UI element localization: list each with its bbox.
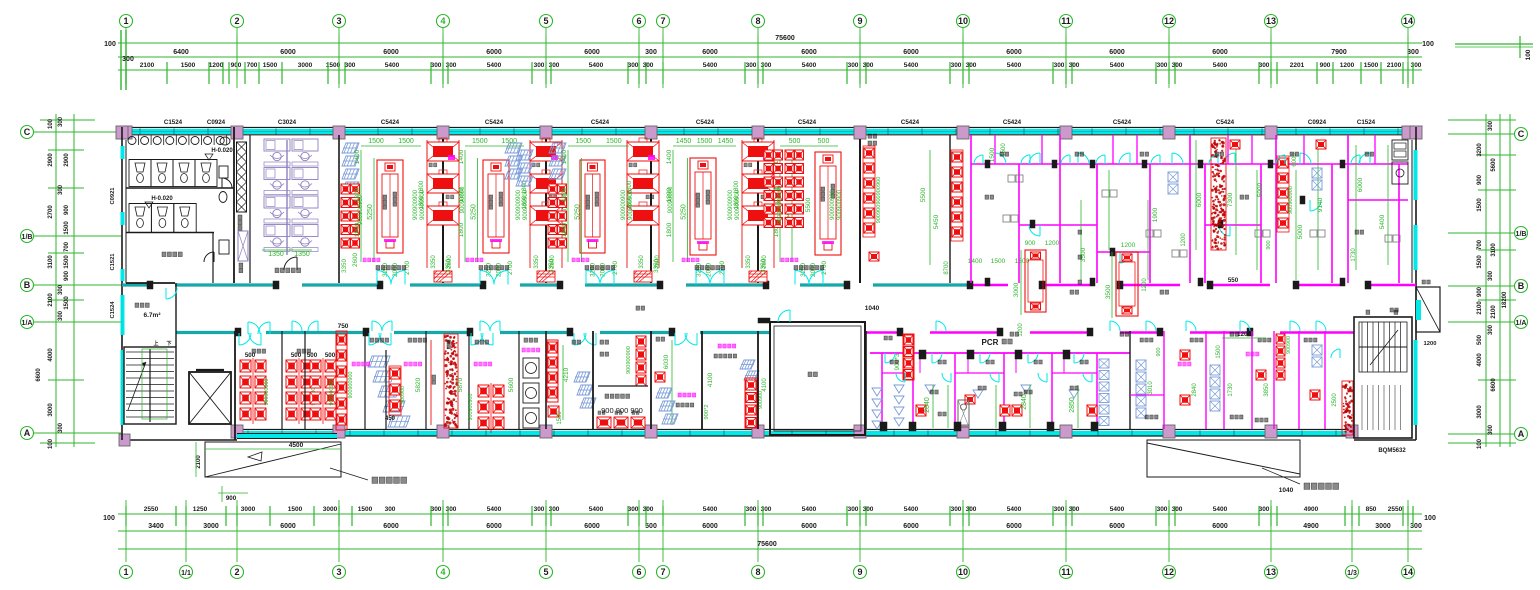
svg-text:H-0.020: H-0.020 bbox=[151, 196, 173, 202]
svg-text:1800: 1800 bbox=[458, 187, 465, 202]
svg-text:700: 700 bbox=[1477, 239, 1483, 250]
svg-text:300: 300 bbox=[1054, 62, 1065, 69]
svg-text:1/B: 1/B bbox=[1516, 231, 1527, 238]
svg-text:1500: 1500 bbox=[501, 138, 517, 145]
svg-text:C1521: C1521 bbox=[110, 253, 116, 271]
svg-text:1350: 1350 bbox=[268, 251, 284, 258]
svg-text:100: 100 bbox=[48, 438, 54, 449]
svg-text:500: 500 bbox=[325, 352, 336, 359]
svg-text:7300: 7300 bbox=[1227, 192, 1234, 207]
svg-text:900900900: 900900900 bbox=[621, 189, 627, 220]
svg-text:6000: 6000 bbox=[1196, 192, 1203, 207]
svg-text:3350: 3350 bbox=[431, 255, 437, 269]
svg-text:1500: 1500 bbox=[181, 62, 196, 69]
svg-text:900: 900 bbox=[1320, 62, 1331, 69]
svg-text:C0924: C0924 bbox=[207, 119, 226, 126]
svg-text:900: 900 bbox=[1477, 286, 1483, 297]
svg-text:3000: 3000 bbox=[203, 523, 219, 530]
svg-text:3000: 3000 bbox=[298, 62, 313, 69]
svg-text:1500: 1500 bbox=[575, 138, 591, 145]
svg-text:2700: 2700 bbox=[48, 205, 54, 219]
svg-text:6000: 6000 bbox=[702, 49, 718, 56]
svg-text:5250: 5250 bbox=[681, 204, 688, 220]
svg-text:300: 300 bbox=[1172, 506, 1183, 513]
svg-text:PCR: PCR bbox=[982, 338, 999, 347]
svg-text:900: 900 bbox=[1156, 348, 1162, 357]
svg-text:5400: 5400 bbox=[1213, 62, 1228, 69]
svg-text:4000: 4000 bbox=[1477, 353, 1483, 367]
svg-text:3400: 3400 bbox=[148, 523, 164, 530]
svg-text:900: 900 bbox=[226, 495, 237, 502]
svg-text:300: 300 bbox=[1488, 120, 1494, 131]
svg-text:4900: 4900 bbox=[1304, 506, 1319, 513]
svg-text:1400: 1400 bbox=[561, 149, 568, 164]
svg-text:3000: 3000 bbox=[323, 506, 338, 513]
svg-text:700: 700 bbox=[247, 62, 258, 69]
svg-text:14: 14 bbox=[1403, 567, 1413, 577]
svg-text:5450: 5450 bbox=[933, 214, 940, 229]
svg-text:1: 1 bbox=[123, 16, 128, 26]
svg-text:9: 9 bbox=[857, 567, 862, 577]
svg-text:C5424: C5424 bbox=[798, 119, 817, 126]
svg-text:1/A: 1/A bbox=[22, 320, 33, 327]
svg-text:900: 900 bbox=[64, 204, 70, 215]
svg-text:300: 300 bbox=[628, 506, 639, 513]
svg-text:900900900: 900900900 bbox=[837, 189, 843, 220]
svg-text:1800: 1800 bbox=[666, 222, 673, 237]
svg-text:6030: 6030 bbox=[663, 354, 670, 369]
svg-text:2550: 2550 bbox=[144, 506, 159, 513]
svg-text:300: 300 bbox=[1488, 424, 1494, 435]
svg-text:11: 11 bbox=[1061, 16, 1071, 26]
svg-text:900900900: 900900900 bbox=[468, 394, 474, 421]
svg-text:4900: 4900 bbox=[1303, 523, 1319, 530]
svg-text:1800: 1800 bbox=[561, 187, 568, 202]
svg-text:900900900900900: 900900900900900 bbox=[876, 177, 882, 224]
svg-text:5400: 5400 bbox=[487, 62, 502, 69]
svg-text:6000: 6000 bbox=[584, 523, 600, 530]
svg-text:5400: 5400 bbox=[589, 506, 604, 513]
svg-text:5400: 5400 bbox=[802, 506, 817, 513]
svg-text:8: 8 bbox=[755, 16, 760, 26]
svg-text:1800: 1800 bbox=[354, 222, 361, 237]
svg-text:6000: 6000 bbox=[383, 523, 399, 530]
svg-text:900900900900: 900900900900 bbox=[777, 186, 783, 225]
svg-text:7900: 7900 bbox=[1331, 49, 1347, 56]
svg-text:100: 100 bbox=[1477, 438, 1483, 449]
svg-text:1: 1 bbox=[123, 567, 128, 577]
svg-text:300: 300 bbox=[1410, 523, 1422, 530]
svg-text:300: 300 bbox=[628, 62, 639, 69]
svg-text:1730: 1730 bbox=[1228, 383, 1234, 397]
svg-text:6000: 6000 bbox=[1006, 49, 1022, 56]
svg-text:300: 300 bbox=[746, 506, 757, 513]
svg-text:1500: 1500 bbox=[1477, 198, 1483, 212]
svg-text:4: 4 bbox=[440, 567, 445, 577]
svg-text:6000: 6000 bbox=[1357, 177, 1364, 192]
svg-text:1450: 1450 bbox=[718, 138, 734, 145]
svg-text:900: 900 bbox=[231, 62, 242, 69]
svg-text:10: 10 bbox=[958, 567, 968, 577]
svg-text:1500: 1500 bbox=[472, 138, 488, 145]
svg-text:5400: 5400 bbox=[589, 62, 604, 69]
svg-text:100: 100 bbox=[1424, 515, 1436, 522]
svg-text:6.7m²: 6.7m² bbox=[144, 312, 162, 319]
svg-text:4210: 4210 bbox=[563, 367, 570, 382]
svg-text:5: 5 bbox=[543, 567, 548, 577]
svg-text:5400: 5400 bbox=[1007, 506, 1022, 513]
svg-text:2100: 2100 bbox=[1491, 305, 1497, 319]
svg-text:1800: 1800 bbox=[354, 187, 361, 202]
svg-text:300: 300 bbox=[1488, 324, 1494, 335]
svg-text:C5424: C5424 bbox=[381, 119, 400, 126]
svg-text:2100: 2100 bbox=[48, 293, 54, 307]
svg-text:900900900: 900900900 bbox=[1288, 186, 1294, 214]
svg-text:3350: 3350 bbox=[445, 259, 452, 273]
svg-text:900900900: 900900900 bbox=[420, 189, 426, 220]
svg-text:C: C bbox=[1518, 129, 1525, 139]
svg-text:1600: 1600 bbox=[1015, 258, 1030, 265]
svg-text:900900900: 900900900 bbox=[329, 379, 335, 406]
svg-text:300: 300 bbox=[1488, 270, 1494, 281]
svg-text:8700: 8700 bbox=[944, 261, 950, 275]
svg-text:5: 5 bbox=[543, 16, 548, 26]
svg-text:900: 900 bbox=[64, 270, 70, 281]
svg-text:300: 300 bbox=[549, 506, 560, 513]
svg-text:1500: 1500 bbox=[1216, 345, 1222, 359]
svg-text:14: 14 bbox=[1403, 16, 1413, 26]
svg-text:300: 300 bbox=[951, 62, 962, 69]
svg-text:2840: 2840 bbox=[1021, 394, 1028, 410]
svg-text:C0921: C0921 bbox=[110, 187, 116, 205]
svg-text:300: 300 bbox=[746, 62, 757, 69]
svg-text:900900900: 900900900 bbox=[628, 189, 634, 220]
svg-text:900: 900 bbox=[1025, 240, 1036, 247]
svg-text:300: 300 bbox=[345, 62, 356, 69]
svg-text:500: 500 bbox=[645, 523, 657, 530]
svg-text:C5424: C5424 bbox=[1113, 119, 1132, 126]
svg-text:1450: 1450 bbox=[676, 138, 692, 145]
svg-text:6000: 6000 bbox=[702, 523, 718, 530]
svg-text:2100: 2100 bbox=[1387, 62, 1402, 69]
svg-text:11: 11 bbox=[1061, 567, 1071, 577]
svg-text:100: 100 bbox=[1525, 49, 1532, 60]
svg-text:6000: 6000 bbox=[486, 523, 502, 530]
svg-text:3500: 3500 bbox=[1105, 284, 1112, 299]
svg-text:900900900: 900900900 bbox=[830, 189, 836, 220]
svg-text:1200: 1200 bbox=[1340, 62, 1355, 69]
svg-text:6000: 6000 bbox=[383, 49, 399, 56]
svg-text:4100: 4100 bbox=[707, 372, 714, 387]
svg-text:5400: 5400 bbox=[1213, 506, 1228, 513]
svg-text:2100: 2100 bbox=[140, 62, 155, 69]
svg-text:C0924: C0924 bbox=[1308, 119, 1327, 126]
svg-text:900900: 900900 bbox=[758, 391, 764, 409]
svg-text:2850: 2850 bbox=[1069, 397, 1076, 413]
svg-text:300: 300 bbox=[951, 506, 962, 513]
svg-text:13: 13 bbox=[1266, 567, 1276, 577]
svg-text:3: 3 bbox=[336, 16, 341, 26]
svg-text:1500: 1500 bbox=[263, 62, 278, 69]
svg-text:1200: 1200 bbox=[1181, 233, 1187, 247]
svg-text:75600: 75600 bbox=[775, 35, 795, 42]
svg-text:100: 100 bbox=[103, 515, 115, 522]
svg-text:1200: 1200 bbox=[1045, 240, 1060, 247]
svg-text:2: 2 bbox=[234, 16, 239, 26]
svg-text:2201: 2201 bbox=[1290, 62, 1305, 69]
svg-text:1500: 1500 bbox=[64, 221, 70, 235]
svg-text:900: 900 bbox=[1266, 240, 1272, 249]
svg-text:300: 300 bbox=[446, 506, 457, 513]
svg-text:1400: 1400 bbox=[354, 149, 361, 164]
svg-text:1/3: 1/3 bbox=[1347, 570, 1357, 577]
svg-text:500: 500 bbox=[789, 138, 801, 145]
svg-text:1200: 1200 bbox=[1018, 323, 1024, 337]
svg-text:300: 300 bbox=[58, 284, 64, 295]
svg-text:3000: 3000 bbox=[1477, 405, 1483, 419]
svg-text:5870: 5870 bbox=[457, 377, 464, 392]
svg-text:4000: 4000 bbox=[48, 348, 54, 362]
svg-text:450: 450 bbox=[385, 416, 396, 422]
svg-text:300: 300 bbox=[645, 49, 657, 56]
svg-text:1500: 1500 bbox=[606, 138, 622, 145]
svg-text:C5424: C5424 bbox=[485, 119, 504, 126]
svg-text:900900900: 900900900 bbox=[413, 189, 419, 220]
svg-text:3100: 3100 bbox=[1491, 243, 1497, 257]
svg-text:5000: 5000 bbox=[1257, 182, 1264, 197]
svg-text:6000: 6000 bbox=[801, 49, 817, 56]
svg-text:3850: 3850 bbox=[1264, 383, 1270, 397]
svg-text:900900900: 900900900 bbox=[348, 372, 354, 399]
svg-text:1200: 1200 bbox=[1121, 242, 1136, 249]
svg-text:5400: 5400 bbox=[802, 62, 817, 69]
svg-text:5400: 5400 bbox=[703, 62, 718, 69]
svg-text:1500: 1500 bbox=[368, 138, 384, 145]
svg-text:3350: 3350 bbox=[534, 255, 540, 269]
svg-text:13: 13 bbox=[1266, 16, 1276, 26]
svg-text:5500: 5500 bbox=[805, 197, 812, 212]
svg-text:1400: 1400 bbox=[458, 149, 465, 164]
svg-text:900900: 900900 bbox=[400, 386, 406, 404]
svg-text:300: 300 bbox=[1157, 62, 1168, 69]
svg-text:1500: 1500 bbox=[358, 506, 373, 513]
svg-text:300: 300 bbox=[1259, 506, 1270, 513]
svg-text:1200: 1200 bbox=[1237, 331, 1251, 338]
svg-text:7: 7 bbox=[660, 16, 665, 26]
svg-text:5250: 5250 bbox=[367, 204, 374, 220]
svg-text:C5424: C5424 bbox=[591, 119, 610, 126]
svg-text:5400: 5400 bbox=[904, 506, 919, 513]
svg-text:1800: 1800 bbox=[666, 187, 673, 202]
svg-text:6000: 6000 bbox=[903, 49, 919, 56]
svg-text:3350: 3350 bbox=[760, 259, 767, 273]
svg-text:300: 300 bbox=[1259, 62, 1270, 69]
svg-text:H-0.020: H-0.020 bbox=[211, 148, 233, 154]
svg-text:1200: 1200 bbox=[1142, 278, 1148, 292]
svg-text:6000: 6000 bbox=[1109, 49, 1125, 56]
svg-text:900*2: 900*2 bbox=[704, 404, 710, 419]
svg-text:6000: 6000 bbox=[1109, 523, 1125, 530]
svg-text:900900900: 900900900 bbox=[264, 379, 270, 406]
svg-text:6: 6 bbox=[636, 567, 641, 577]
svg-text:3350: 3350 bbox=[341, 259, 348, 273]
svg-text:900900900: 900900900 bbox=[626, 346, 632, 374]
svg-text:300: 300 bbox=[966, 62, 977, 69]
svg-text:1500: 1500 bbox=[64, 296, 70, 310]
svg-text:6000: 6000 bbox=[280, 523, 296, 530]
svg-text:6000: 6000 bbox=[1212, 523, 1228, 530]
svg-text:12: 12 bbox=[1164, 567, 1174, 577]
svg-text:1040: 1040 bbox=[1279, 487, 1294, 494]
svg-text:3200: 3200 bbox=[1477, 143, 1483, 157]
svg-text:5400: 5400 bbox=[904, 62, 919, 69]
svg-text:3000: 3000 bbox=[241, 506, 256, 513]
svg-text:75600: 75600 bbox=[757, 541, 777, 548]
svg-text:1500: 1500 bbox=[1364, 62, 1379, 69]
svg-text:900900900: 900900900 bbox=[523, 189, 529, 220]
svg-text:300: 300 bbox=[1069, 62, 1080, 69]
svg-text:C5424: C5424 bbox=[1003, 119, 1022, 126]
svg-text:300: 300 bbox=[643, 62, 654, 69]
svg-text:C5424: C5424 bbox=[901, 119, 920, 126]
svg-text:9: 9 bbox=[857, 16, 862, 26]
svg-text:900: 900 bbox=[1477, 174, 1483, 185]
svg-text:300: 300 bbox=[1157, 506, 1168, 513]
svg-text:300: 300 bbox=[863, 506, 874, 513]
svg-text:700: 700 bbox=[64, 241, 70, 252]
svg-text:300: 300 bbox=[431, 506, 442, 513]
svg-text:4500: 4500 bbox=[289, 442, 304, 449]
svg-text:6000: 6000 bbox=[903, 523, 919, 530]
svg-text:5400: 5400 bbox=[703, 506, 718, 513]
svg-text:1250: 1250 bbox=[193, 506, 208, 513]
svg-text:1500: 1500 bbox=[398, 138, 414, 145]
svg-text:300: 300 bbox=[1407, 49, 1419, 56]
svg-text:5250: 5250 bbox=[471, 204, 478, 220]
svg-text:300: 300 bbox=[431, 62, 442, 69]
svg-text:300: 300 bbox=[1411, 62, 1422, 69]
svg-text:1400: 1400 bbox=[666, 149, 673, 164]
svg-text:6600: 6600 bbox=[1491, 378, 1497, 392]
svg-text:BQM5632: BQM5632 bbox=[1378, 448, 1406, 454]
svg-text:5000: 5000 bbox=[1297, 224, 1304, 239]
svg-text:C3024: C3024 bbox=[278, 119, 297, 126]
svg-text:6: 6 bbox=[636, 16, 641, 26]
svg-text:2600: 2600 bbox=[352, 253, 359, 267]
svg-text:5400: 5400 bbox=[1379, 214, 1386, 229]
svg-text:500: 500 bbox=[1477, 334, 1483, 345]
svg-text:1350: 1350 bbox=[294, 251, 310, 258]
svg-text:2840: 2840 bbox=[924, 397, 931, 413]
svg-text:B: B bbox=[1518, 281, 1525, 291]
svg-text:300: 300 bbox=[848, 506, 859, 513]
svg-text:5600: 5600 bbox=[1491, 158, 1497, 172]
svg-text:300: 300 bbox=[1054, 506, 1065, 513]
svg-text:300: 300 bbox=[385, 506, 396, 513]
svg-text:2840: 2840 bbox=[1192, 383, 1198, 397]
svg-text:2900: 2900 bbox=[48, 153, 54, 167]
svg-text:3000: 3000 bbox=[1013, 282, 1020, 297]
svg-text:300: 300 bbox=[848, 62, 859, 69]
svg-text:1500: 1500 bbox=[288, 506, 303, 513]
svg-text:6000: 6000 bbox=[486, 49, 502, 56]
svg-text:3000: 3000 bbox=[1375, 523, 1391, 530]
svg-text:3350: 3350 bbox=[746, 255, 752, 269]
svg-text:6000: 6000 bbox=[1006, 523, 1022, 530]
svg-text:2100: 2100 bbox=[196, 455, 202, 469]
svg-text:5400: 5400 bbox=[487, 506, 502, 513]
svg-text:300: 300 bbox=[58, 116, 64, 127]
svg-text:C5424: C5424 bbox=[1216, 119, 1235, 126]
svg-text:300: 300 bbox=[446, 62, 457, 69]
svg-text:2100: 2100 bbox=[1477, 301, 1483, 315]
svg-text:300: 300 bbox=[122, 56, 134, 63]
svg-text:100: 100 bbox=[1422, 41, 1434, 48]
svg-text:300: 300 bbox=[1069, 506, 1080, 513]
svg-text:5400: 5400 bbox=[1007, 62, 1022, 69]
svg-text:4: 4 bbox=[440, 16, 445, 26]
svg-text:1500: 1500 bbox=[557, 411, 563, 425]
svg-text:1200: 1200 bbox=[1424, 341, 1437, 347]
svg-text:300: 300 bbox=[534, 62, 545, 69]
svg-text:2500: 2500 bbox=[1332, 393, 1338, 407]
svg-text:300: 300 bbox=[966, 506, 977, 513]
svg-text:6000: 6000 bbox=[280, 49, 296, 56]
svg-text:1800: 1800 bbox=[561, 222, 568, 237]
svg-text:900900900: 900900900 bbox=[735, 189, 741, 220]
svg-text:900900900: 900900900 bbox=[516, 189, 522, 220]
svg-text:A: A bbox=[24, 428, 31, 438]
svg-text:B: B bbox=[24, 280, 31, 290]
svg-text:300: 300 bbox=[58, 310, 64, 321]
svg-text:3100: 3100 bbox=[48, 255, 54, 269]
svg-text:3350: 3350 bbox=[548, 259, 555, 273]
svg-text:300: 300 bbox=[58, 422, 64, 433]
svg-text:1900: 1900 bbox=[1152, 207, 1159, 222]
svg-text:4100: 4100 bbox=[762, 378, 768, 392]
svg-text:550: 550 bbox=[1228, 277, 1239, 284]
svg-text:850: 850 bbox=[1366, 506, 1377, 513]
svg-text:300: 300 bbox=[761, 506, 772, 513]
svg-text:1400: 1400 bbox=[968, 258, 983, 265]
svg-text:300: 300 bbox=[1172, 62, 1183, 69]
svg-text:5400: 5400 bbox=[1110, 62, 1125, 69]
svg-text:300: 300 bbox=[549, 62, 560, 69]
svg-text:6000: 6000 bbox=[1212, 49, 1228, 56]
svg-text:2550: 2550 bbox=[1388, 506, 1403, 513]
svg-text:1800: 1800 bbox=[458, 222, 465, 237]
svg-text:A: A bbox=[1518, 429, 1525, 439]
svg-text:C5424: C5424 bbox=[696, 119, 715, 126]
svg-text:6600: 6600 bbox=[36, 368, 42, 382]
svg-text:3350: 3350 bbox=[639, 255, 645, 269]
svg-text:300: 300 bbox=[643, 506, 654, 513]
svg-text:5820: 5820 bbox=[415, 377, 422, 392]
svg-text:5400: 5400 bbox=[1110, 506, 1125, 513]
svg-text:100: 100 bbox=[48, 118, 54, 129]
svg-text:3: 3 bbox=[336, 567, 341, 577]
svg-text:12: 12 bbox=[1164, 16, 1174, 26]
svg-text:6000: 6000 bbox=[801, 523, 817, 530]
svg-text:300: 300 bbox=[863, 62, 874, 69]
svg-text:1/B: 1/B bbox=[22, 234, 33, 241]
svg-text:500: 500 bbox=[818, 138, 830, 145]
svg-text:1500: 1500 bbox=[697, 138, 713, 145]
svg-text:1500: 1500 bbox=[991, 258, 1006, 265]
svg-text:300: 300 bbox=[58, 184, 64, 195]
svg-text:2: 2 bbox=[234, 567, 239, 577]
svg-text:10: 10 bbox=[958, 16, 968, 26]
